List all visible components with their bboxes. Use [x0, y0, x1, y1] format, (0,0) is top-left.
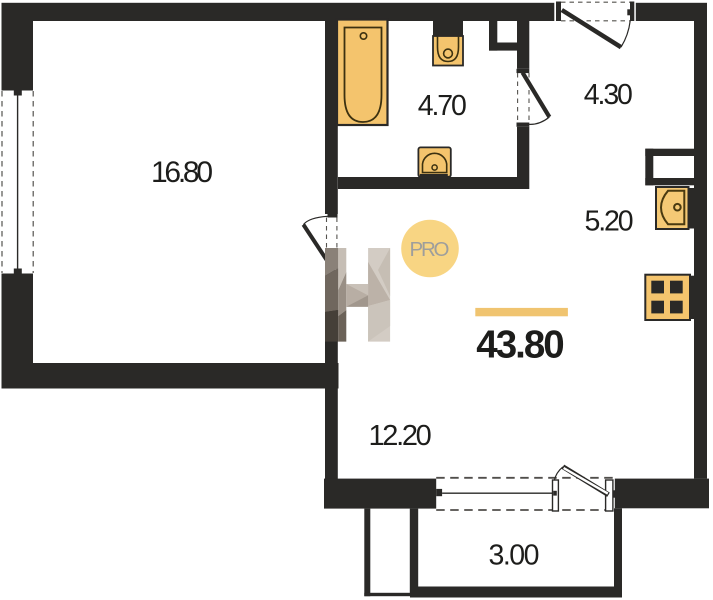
svg-text:5.20: 5.20: [585, 206, 634, 238]
svg-text:4.30: 4.30: [584, 79, 633, 111]
svg-text:16.80: 16.80: [151, 156, 213, 189]
svg-text:PRO: PRO: [410, 238, 451, 261]
svg-text:12.20: 12.20: [369, 420, 432, 452]
svg-text:3.00: 3.00: [489, 540, 540, 572]
svg-text:43.80: 43.80: [476, 324, 564, 367]
svg-text:4.70: 4.70: [418, 90, 467, 122]
